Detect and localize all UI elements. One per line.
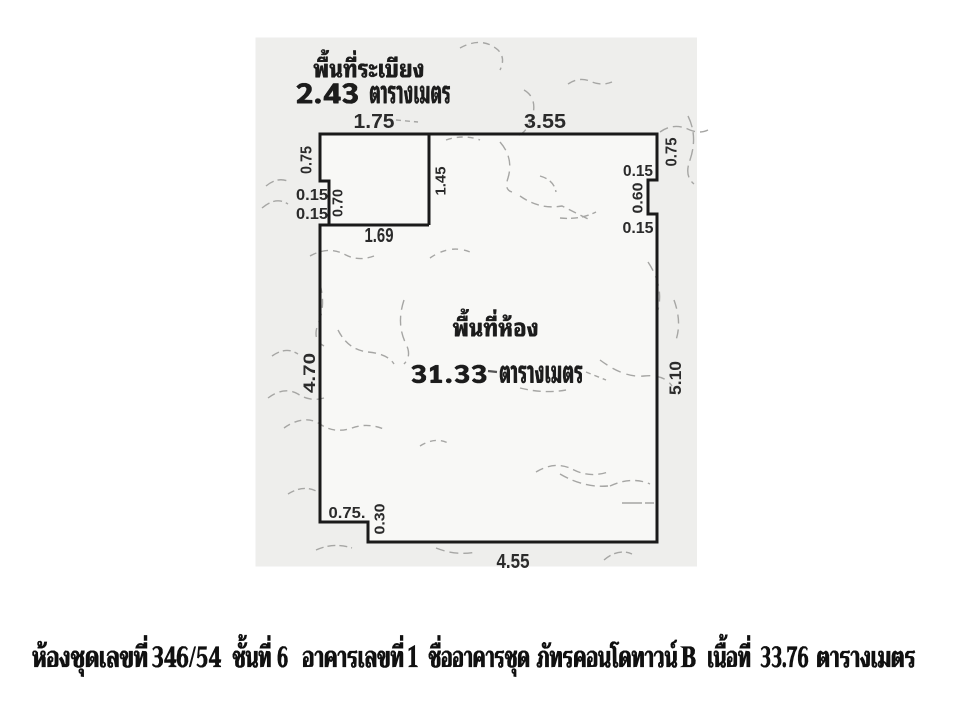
svg-text:1.45: 1.45 xyxy=(432,167,449,196)
svg-text:0.15: 0.15 xyxy=(296,206,328,223)
svg-text:0.75: 0.75 xyxy=(664,137,681,166)
svg-text:0.75: 0.75 xyxy=(299,146,316,174)
svg-text:0.15: 0.15 xyxy=(296,187,328,204)
svg-text:1.69: 1.69 xyxy=(365,225,394,247)
svg-text:4.55: 4.55 xyxy=(497,551,530,573)
svg-text:0.75.: 0.75. xyxy=(329,505,366,522)
svg-text:3.55: 3.55 xyxy=(524,111,566,133)
svg-text:0.70: 0.70 xyxy=(329,189,346,217)
svg-text:0.15: 0.15 xyxy=(623,163,653,180)
svg-text:1.75: 1.75 xyxy=(354,111,395,133)
svg-text:0.60: 0.60 xyxy=(629,183,646,214)
svg-text:5.10: 5.10 xyxy=(666,361,685,395)
svg-text:0.15: 0.15 xyxy=(623,220,654,237)
svg-text:4.70: 4.70 xyxy=(300,353,319,393)
svg-text:0.30: 0.30 xyxy=(371,504,388,535)
